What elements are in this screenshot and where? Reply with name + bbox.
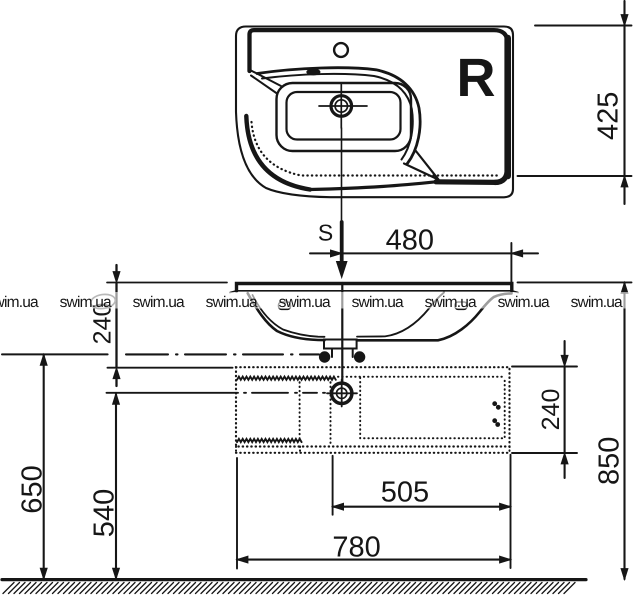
svg-text:480: 480 — [386, 225, 434, 257]
svg-text:540: 540 — [89, 489, 121, 537]
svg-text:505: 505 — [381, 477, 429, 509]
svg-text:425: 425 — [593, 92, 625, 140]
svg-text:850: 850 — [594, 437, 626, 485]
svg-text:S: S — [318, 220, 333, 246]
svg-text:R: R — [457, 48, 496, 108]
svg-text:650: 650 — [17, 465, 49, 513]
svg-text:780: 780 — [332, 531, 380, 563]
svg-text:240: 240 — [537, 389, 565, 431]
